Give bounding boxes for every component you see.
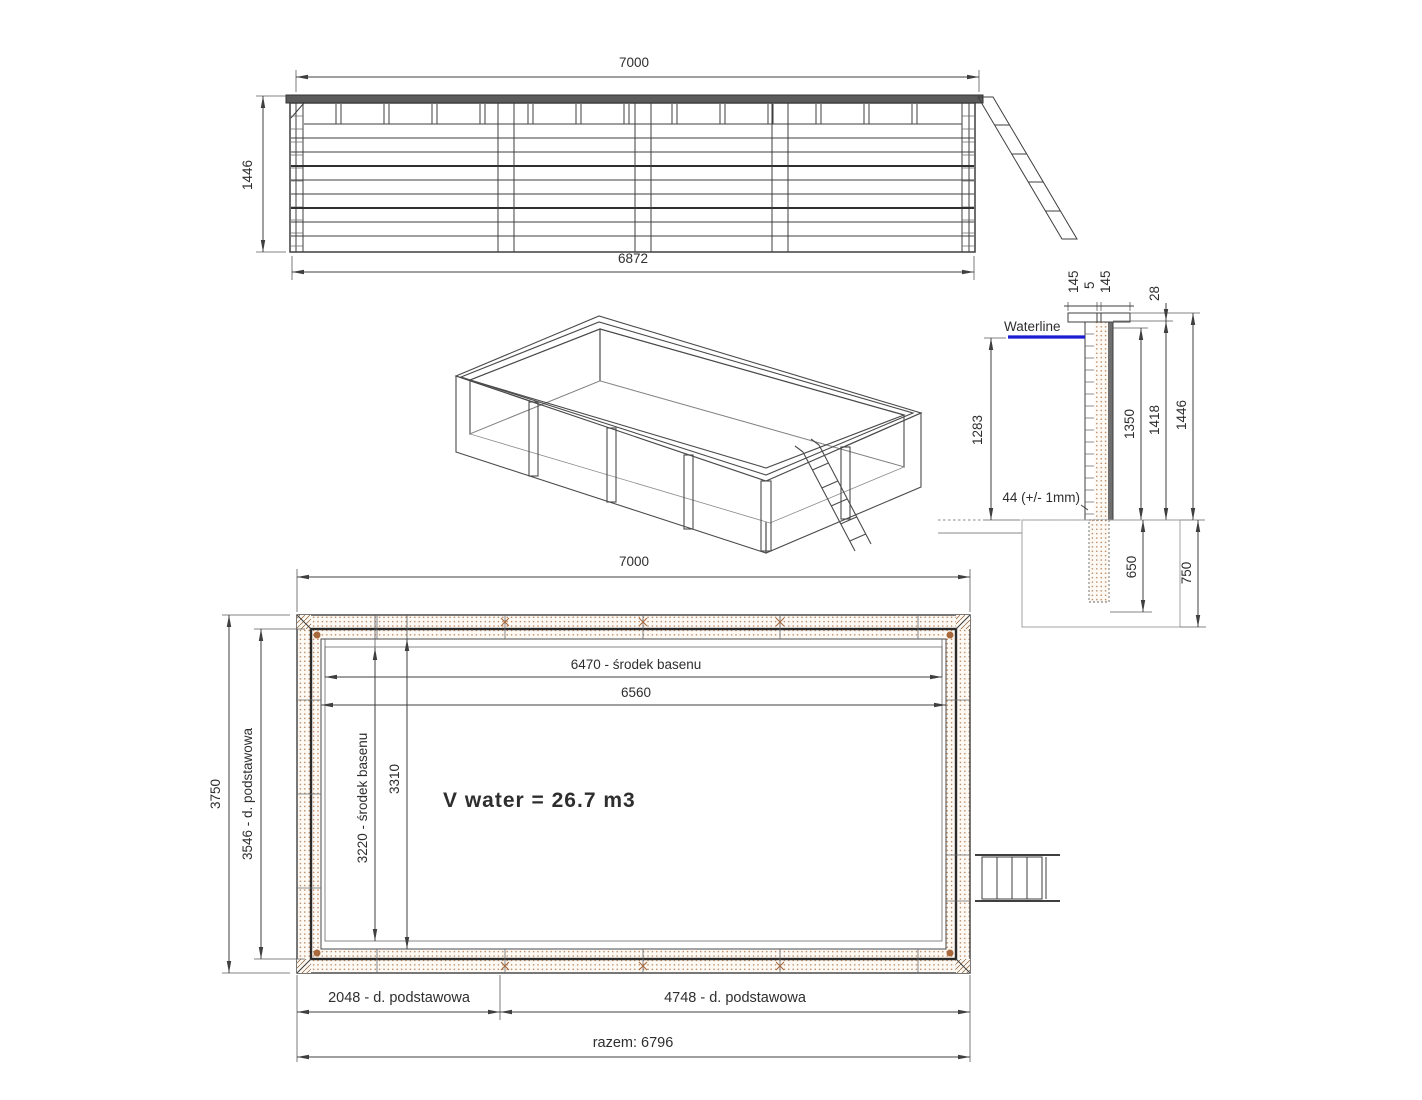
plan-dim-3546: 3546 - d. podstawowa — [240, 629, 305, 959]
dim-2048-label: 2048 - d. podstawowa — [328, 990, 471, 1006]
elevation-dim-bottom-label: 6872 — [618, 251, 648, 266]
corner-post-marker — [314, 950, 321, 957]
dim-750-label: 750 — [1179, 562, 1194, 585]
dim-6560-label: 6560 — [621, 685, 651, 700]
pool-technical-drawing: 7000 — [0, 0, 1422, 1100]
cap-dim-right-label: 145 — [1098, 270, 1113, 293]
dim-3546-label: 3546 - d. podstawowa — [240, 727, 255, 860]
plan-ladder — [975, 855, 1060, 901]
cap-dim-center-label: 5 — [1082, 281, 1097, 289]
water-volume-label: V water = 26.7 m3 — [443, 789, 636, 812]
elevation-post — [635, 103, 651, 252]
dim-3220-label: 3220 - środek basenu — [355, 733, 370, 864]
dim-1418-label: 1418 — [1147, 405, 1162, 435]
dim-6470-label: 6470 - środek basenu — [571, 657, 702, 672]
drawing-sheet: 7000 — [0, 0, 1422, 1100]
dim-3310-label: 3310 — [387, 764, 402, 794]
plan-view: 7000 6470 - śro — [208, 554, 1060, 1062]
elevation-post — [772, 103, 788, 252]
plan-dim-top: 7000 — [297, 554, 970, 612]
section-ground-pit: 650 750 — [938, 520, 1206, 627]
section-view: 145 5 145 Waterline 1283 44 (+/- 1mm) — [938, 270, 1206, 627]
elevation-dim-left-label: 1446 — [240, 160, 255, 190]
dim-1283-label: 1283 — [970, 415, 985, 445]
corner-post-marker — [947, 950, 954, 957]
section-right-dims: 28 1350 1418 1446 — [1113, 286, 1205, 520]
plan-dim-top-label: 7000 — [619, 554, 649, 569]
section-thickness-note: 44 (+/- 1mm) — [1002, 490, 1088, 510]
isometric-view — [456, 316, 921, 553]
elevation-dim-top-label: 7000 — [619, 55, 649, 70]
dim-1446-label: 1446 — [1174, 400, 1189, 430]
cap-dim-left-label: 145 — [1066, 270, 1081, 293]
elevation-dim-top: 7000 — [296, 55, 979, 92]
dim-4748-label: 4748 - d. podstawowa — [664, 990, 807, 1006]
elevation-post — [498, 103, 514, 252]
dim-3750-label: 3750 — [208, 779, 223, 809]
dim-28-label: 28 — [1147, 286, 1162, 301]
dim-650-label: 650 — [1124, 556, 1139, 579]
section-cap-dims: 145 5 145 — [1064, 270, 1134, 311]
section-post-below-ground — [1089, 520, 1109, 602]
dim-1350-label: 1350 — [1122, 409, 1137, 439]
corner-post-marker — [947, 632, 954, 639]
dim-razem-label: razem: 6796 — [593, 1035, 674, 1051]
elevation-view: 7000 — [240, 55, 1077, 280]
waterline-label: Waterline — [1004, 319, 1061, 334]
elevation-dim-bottom: 6872 — [292, 251, 974, 280]
thickness-note-label: 44 (+/- 1mm) — [1002, 490, 1080, 505]
elevation-dim-left: 1446 — [240, 96, 286, 252]
corner-post-marker — [314, 632, 321, 639]
elevation-pool-body — [286, 95, 983, 252]
plan-dims-bottom: 2048 - d. podstawowa 4748 - d. podstawow… — [297, 975, 970, 1062]
elevation-ladder — [978, 97, 1077, 239]
section-wall — [1085, 322, 1113, 520]
